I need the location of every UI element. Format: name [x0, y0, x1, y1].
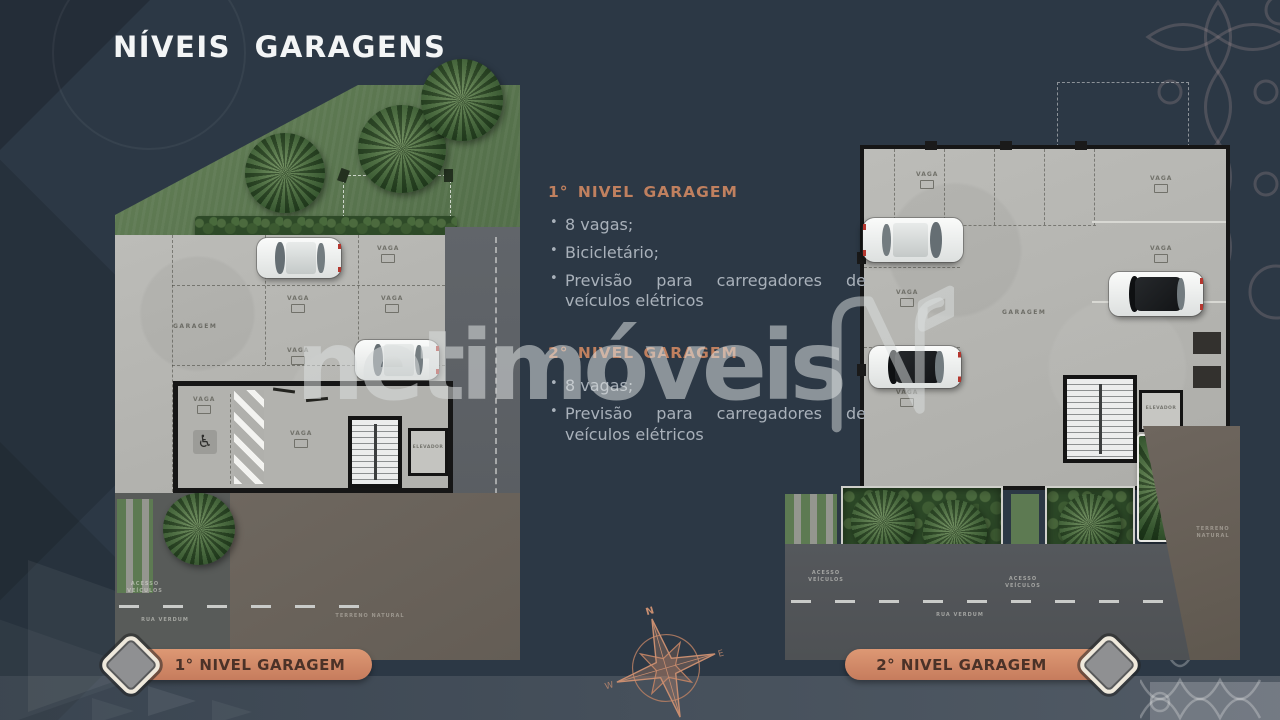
- hatched-walkway: [234, 390, 264, 484]
- street-center-dashes: [119, 605, 371, 608]
- car-windshield: [373, 344, 383, 377]
- bay-line: [1094, 149, 1095, 225]
- bay-line: [894, 149, 895, 225]
- elevator-room: ELEVADOR: [1139, 390, 1183, 432]
- floor-plan-level1: VAGA VAGA VAGA VAGA GARAGEM VAGA ♿: [115, 85, 520, 660]
- presentation-slide: NÍVEIS GARAGENS VAGA VAGA VAGA: [0, 0, 1280, 720]
- bullet-item: Bicicletário;: [548, 243, 866, 264]
- dashed-projection: [1057, 82, 1189, 147]
- vaga-label: VAGA: [193, 396, 215, 414]
- triangle-decoration: [148, 686, 196, 716]
- palm-tree: [421, 59, 503, 141]
- car-rear-window: [415, 345, 423, 375]
- vaga-label: VAGA: [916, 171, 938, 189]
- compass-n: N: [645, 605, 656, 618]
- car-rear-window: [882, 224, 891, 257]
- vaga-label: VAGA: [290, 430, 312, 448]
- vaga-label: VAGA: [287, 347, 309, 365]
- bay-line: [994, 149, 995, 225]
- garagem-label: GARAGEM: [173, 323, 217, 330]
- car-top-view: [355, 340, 439, 380]
- section-heading: 1° NIVEL GARAGEM: [548, 183, 866, 201]
- car-top-view: [863, 218, 963, 262]
- compass-w: W: [604, 680, 615, 692]
- bay-line: [864, 267, 960, 268]
- gate-post: [444, 169, 453, 182]
- car-windshield: [930, 222, 942, 258]
- car-rear-window: [317, 243, 325, 273]
- wall-pillar: [1075, 141, 1087, 150]
- street-center-dashes: [791, 600, 1191, 603]
- storage-box: [1193, 332, 1221, 354]
- palm-tree: [245, 133, 325, 213]
- vaga-label: VAGA: [896, 289, 918, 307]
- grass-paver-strips: [117, 499, 153, 593]
- elevator-room: ELEVADOR: [408, 428, 448, 476]
- car-roof: [286, 242, 315, 273]
- bay-line: [1044, 149, 1045, 225]
- bullet-item: 8 vagas;: [548, 215, 866, 236]
- vaga-label: VAGA: [381, 295, 403, 313]
- stair-rail: [1099, 384, 1102, 454]
- suv-top-view: [1109, 272, 1203, 316]
- page-title: NÍVEIS GARAGENS: [113, 30, 446, 64]
- car-top-view: [869, 346, 961, 388]
- acesso-veiculos-label: ACESSO VEÍCULOS: [803, 570, 849, 584]
- car-roof: [384, 344, 413, 375]
- vaga-label: VAGA: [287, 295, 309, 313]
- section-level2: 2° NIVEL GARAGEM 8 vagas; Previsão para …: [548, 344, 866, 445]
- elevador-label: ELEVADOR: [1142, 406, 1180, 411]
- section-bullets: 8 vagas; Previsão para carregadores de v…: [548, 376, 866, 445]
- stair-rail: [374, 424, 377, 480]
- bay-line: [1092, 221, 1226, 223]
- vaga-label: VAGA: [377, 245, 399, 263]
- wall-pillar: [925, 141, 937, 150]
- car-roof: [893, 223, 928, 257]
- bullet-item: Previsão para carregadores de veículos e…: [548, 271, 866, 313]
- car-roof: [895, 351, 941, 384]
- section-bullets: 8 vagas; Bicicletário; Previsão para car…: [548, 215, 866, 312]
- bay-line: [944, 149, 945, 225]
- acesso-veiculos-label: ACESSO VEÍCULOS: [1000, 576, 1046, 590]
- palm-tree: [163, 493, 235, 565]
- natural-terrain: TERRENO NATURAL: [230, 493, 520, 660]
- service-structure: VAGA ♿ VAGA ELEVADOR: [173, 381, 453, 493]
- wheelchair-icon: ♿: [193, 430, 217, 454]
- bullet-item: Previsão para carregadores de veículos e…: [548, 404, 866, 446]
- banner-level1-label: 1° NIVEL GARAGEM: [175, 656, 346, 674]
- compass-rose: N E S W: [597, 601, 734, 720]
- bike-rack-icon: [273, 387, 295, 393]
- car-rear-window: [1177, 278, 1185, 311]
- banner-level2: 2° NIVEL GARAGEM: [845, 649, 1108, 680]
- stairwell: [1063, 375, 1137, 463]
- compass-e: E: [717, 649, 726, 660]
- storage-box: [1193, 366, 1221, 388]
- rua-verdum-label: RUA VERDUM: [915, 612, 1005, 619]
- elevador-label: ELEVADOR: [411, 445, 445, 450]
- wall-pillar: [1000, 141, 1012, 150]
- corner-light-panel: [1150, 682, 1280, 720]
- garagem-label: GARAGEM: [1002, 309, 1046, 316]
- rua-verdum-label: RUA VERDUM: [135, 617, 195, 624]
- stairwell: [348, 416, 402, 488]
- section-heading: 2° NIVEL GARAGEM: [548, 344, 866, 362]
- vaga-label: VAGA: [896, 389, 918, 407]
- triangle-decoration: [92, 698, 134, 720]
- vaga-label: VAGA: [1150, 175, 1172, 193]
- triangle-decoration: [212, 700, 252, 720]
- info-column: 1° NIVEL GARAGEM 8 vagas; Bicicletário; …: [548, 183, 866, 453]
- terreno-natural-label: TERRENO NATURAL: [335, 613, 405, 620]
- car-roof: [1135, 277, 1182, 311]
- car-rear-window: [935, 351, 943, 382]
- acesso-veiculos-label: ACESSO VEÍCULOS: [123, 581, 167, 595]
- bullet-item: 8 vagas;: [548, 376, 866, 397]
- bike-rack-icon: [306, 397, 328, 402]
- bay-line: [172, 285, 445, 286]
- section-level1: 1° NIVEL GARAGEM 8 vagas; Bicicletário; …: [548, 183, 866, 312]
- terreno-natural-label: TERRENO NATURAL: [1190, 526, 1236, 540]
- banner-level2-label: 2° NIVEL GARAGEM: [876, 656, 1047, 674]
- vaga-label: VAGA: [1150, 245, 1172, 263]
- car-windshield: [275, 242, 285, 275]
- accessible-bay: VAGA ♿: [180, 394, 231, 484]
- car-top-view: [257, 238, 341, 278]
